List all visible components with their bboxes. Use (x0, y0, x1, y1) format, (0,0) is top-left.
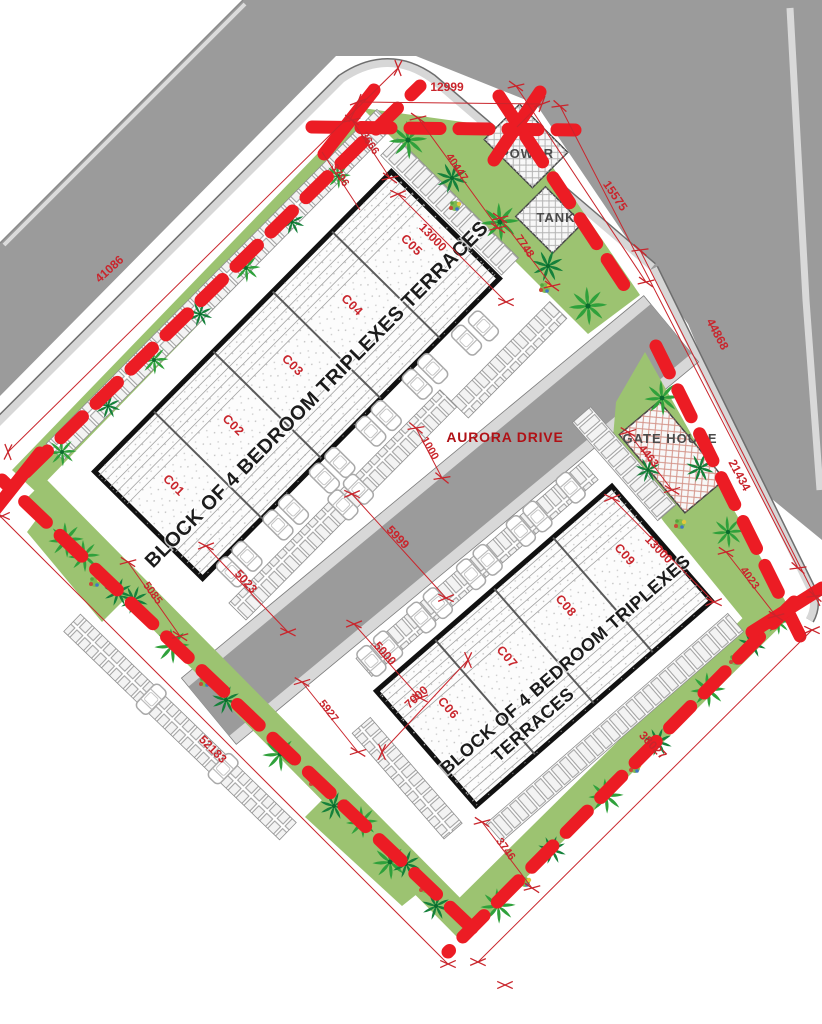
aurora-drive-label: AURORA DRIVE (446, 429, 563, 445)
dim-12999: 12999 (430, 80, 464, 94)
site-plan-page: C01 C02 C03 C04 C05 BLOCK OF 4 BEDROOM T… (0, 0, 822, 1024)
tank-label: TANK (536, 210, 575, 225)
site-plan-drawing: C01 C02 C03 C04 C05 BLOCK OF 4 BEDROOM T… (0, 0, 822, 1024)
